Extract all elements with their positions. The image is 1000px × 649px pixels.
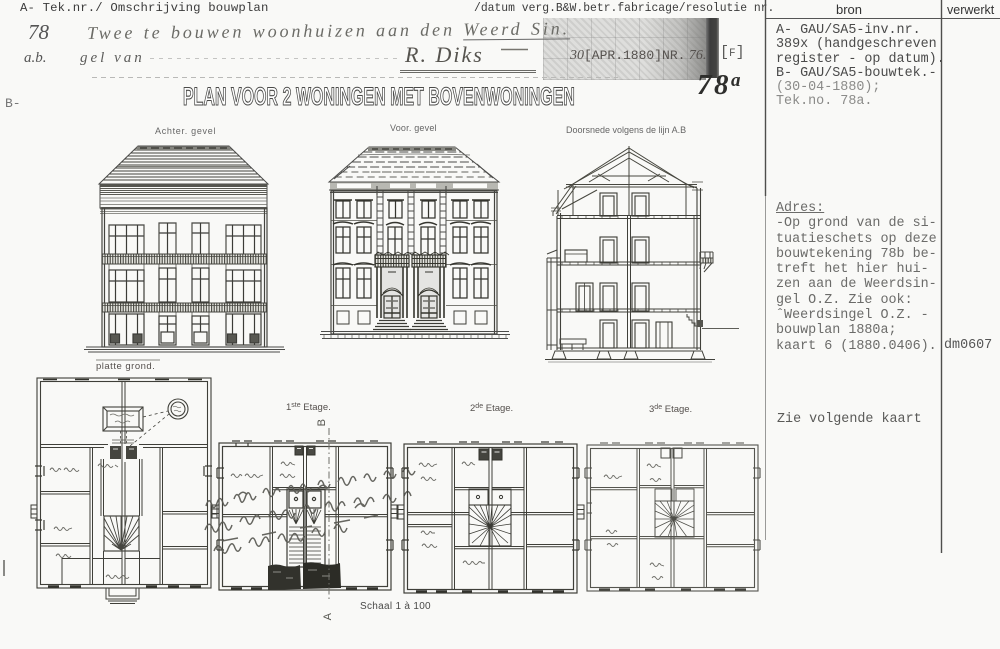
svg-text:A: A — [322, 612, 334, 620]
svg-text:B: B — [316, 419, 328, 426]
